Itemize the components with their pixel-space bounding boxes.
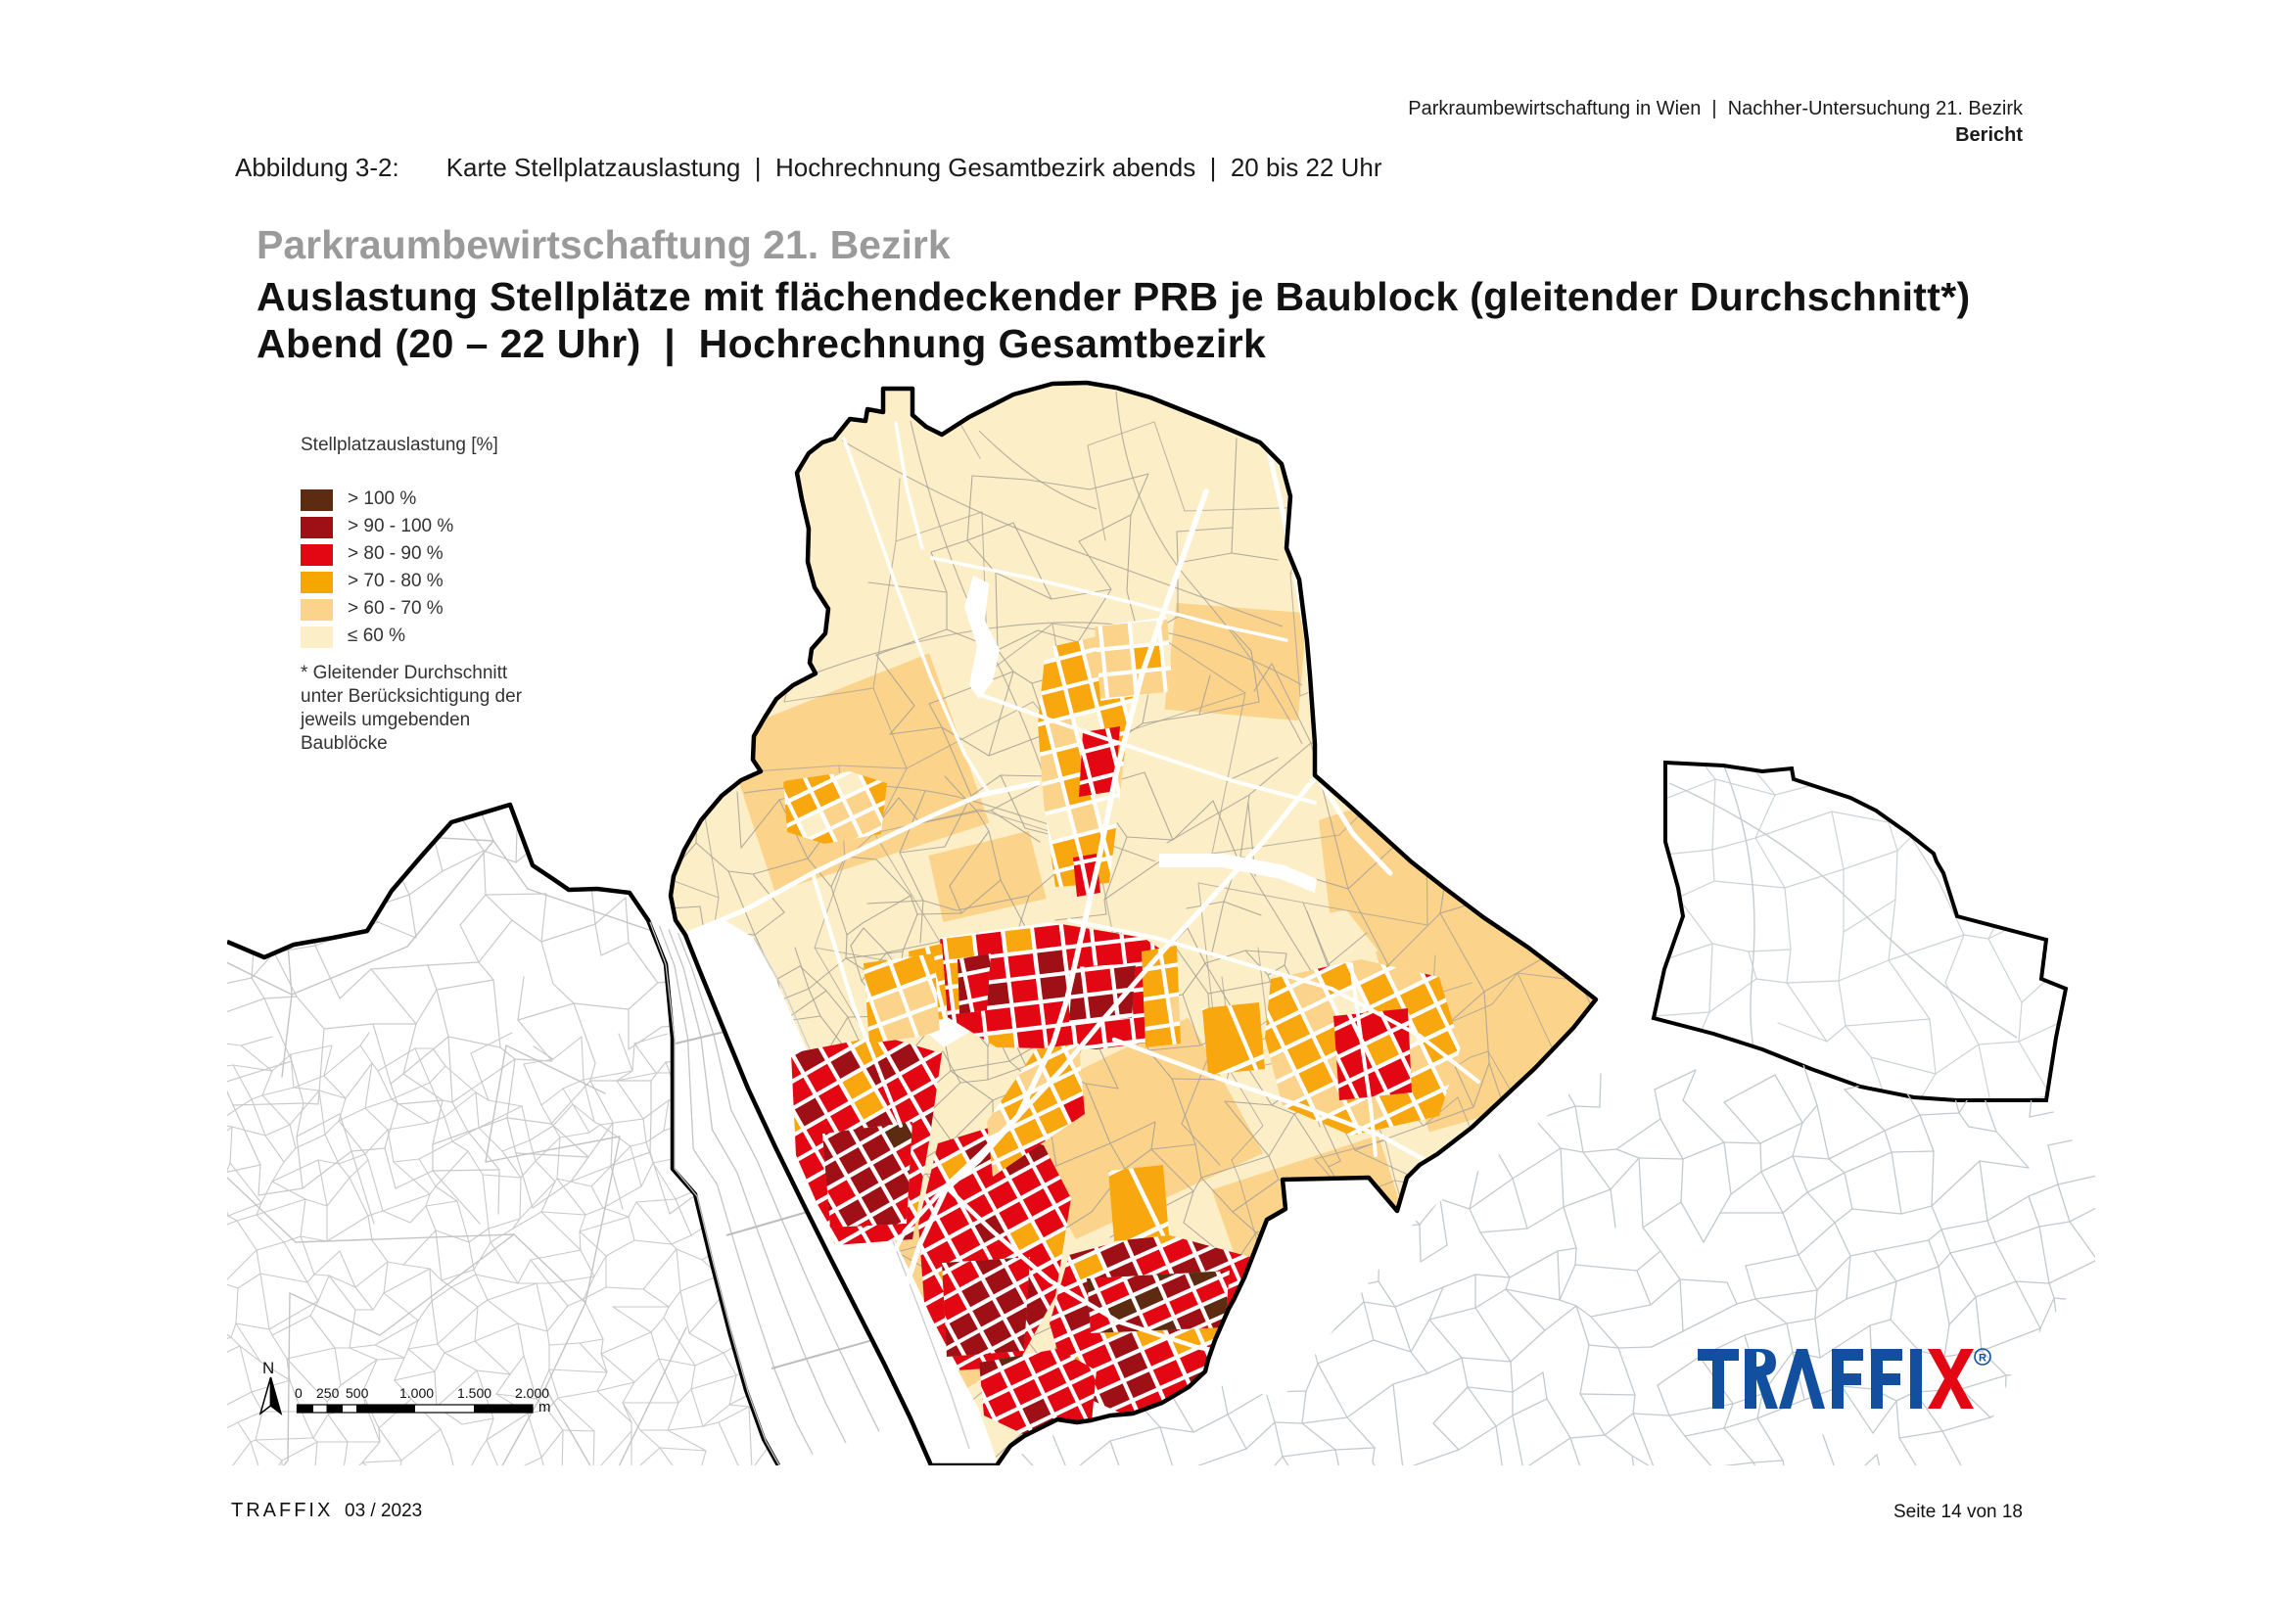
svg-text:R: R xyxy=(1979,1353,1986,1365)
